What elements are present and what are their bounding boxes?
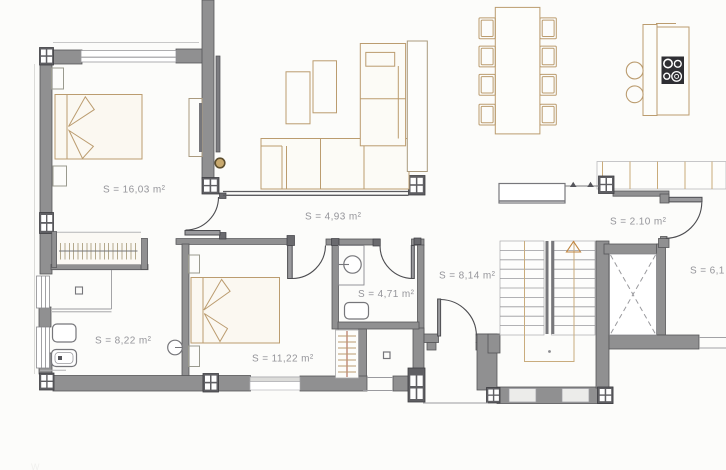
- svg-text:S = 8,22 m²: S = 8,22 m²: [95, 336, 152, 347]
- svg-text:S = 2.10 m²: S = 2.10 m²: [610, 217, 667, 228]
- svg-text:S = 4,93 m²: S = 4,93 m²: [305, 212, 362, 223]
- svg-text:S = 16,03 m²: S = 16,03 m²: [103, 185, 166, 196]
- svg-text:S = 8,14 m²: S = 8,14 m²: [439, 271, 496, 282]
- svg-text:S = 11,22 m²: S = 11,22 m²: [252, 354, 314, 365]
- svg-text:W: W: [31, 462, 40, 470]
- svg-text:S = 4,71 m²: S = 4,71 m²: [358, 289, 415, 300]
- svg-text:S = 6,1: S = 6,1: [690, 266, 725, 277]
